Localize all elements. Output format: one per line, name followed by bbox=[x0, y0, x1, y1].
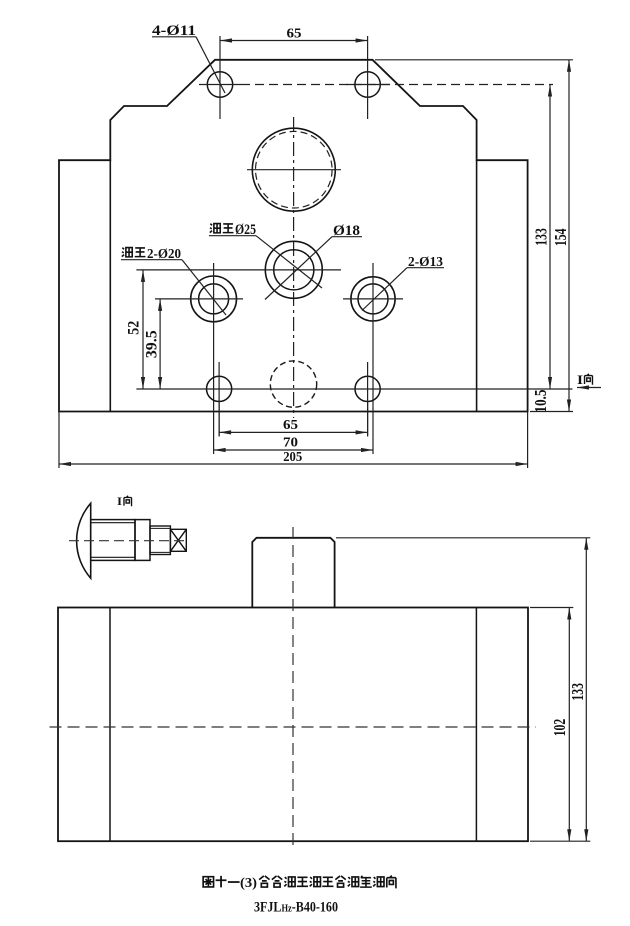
svg-text:102: 102 bbox=[550, 719, 569, 737]
svg-text:3FJLHz-B40-160: 3FJLHz-B40-160 bbox=[254, 900, 338, 916]
svg-text:70: 70 bbox=[283, 435, 298, 450]
svg-text:(3): (3) bbox=[240, 876, 257, 891]
svg-text:39.5: 39.5 bbox=[144, 330, 161, 358]
svg-text:133: 133 bbox=[568, 683, 587, 701]
svg-text:10.5: 10.5 bbox=[531, 390, 550, 413]
svg-text:I: I bbox=[117, 494, 122, 508]
svg-text:52: 52 bbox=[126, 321, 143, 335]
svg-text:I: I bbox=[577, 372, 583, 387]
svg-text:205: 205 bbox=[283, 449, 302, 464]
svg-text:154: 154 bbox=[551, 228, 570, 246]
svg-text:65: 65 bbox=[283, 417, 298, 432]
svg-text:133: 133 bbox=[532, 228, 551, 246]
svg-text:65: 65 bbox=[287, 26, 302, 41]
